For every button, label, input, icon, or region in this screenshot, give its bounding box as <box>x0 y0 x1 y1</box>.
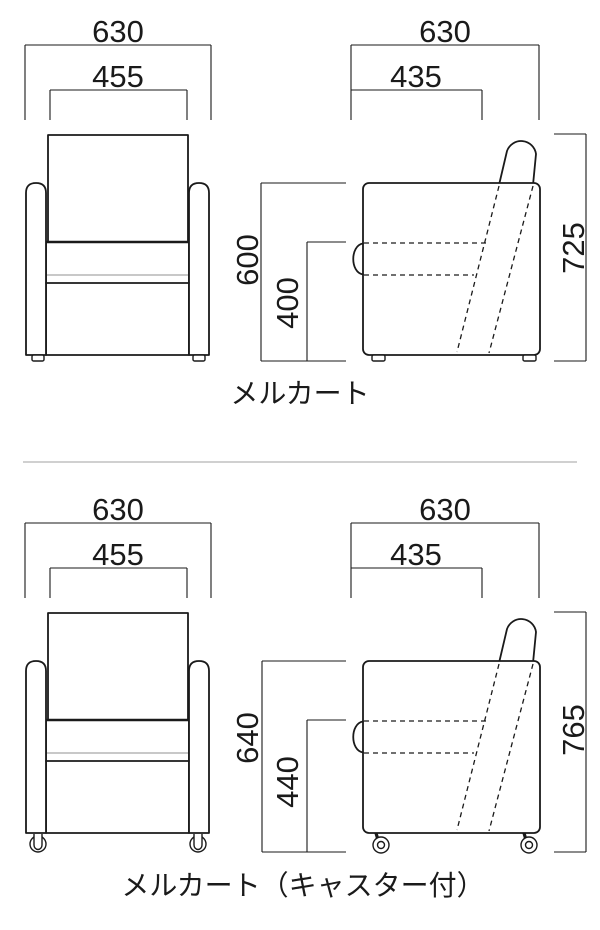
seat-height-value-caster: 440 <box>270 756 305 808</box>
side-seat-depth-value: 435 <box>390 59 442 94</box>
side-overall-depth-value: 630 <box>419 14 471 49</box>
seat-height-lines <box>307 242 346 361</box>
arm-height-lines <box>261 183 346 361</box>
front-caster-right-fork <box>194 834 202 850</box>
side-seat-depth-value-caster: 435 <box>390 537 442 572</box>
total-height-value: 725 <box>556 222 591 274</box>
arm-height-value-caster: 640 <box>230 712 265 764</box>
front-foot-left <box>32 355 44 361</box>
side-overall-depth-value-caster: 630 <box>419 492 471 527</box>
front-caster-right <box>190 834 206 852</box>
side-chair-standard <box>353 141 540 355</box>
front-chair-caster <box>26 613 209 833</box>
seat-height-lines-caster <box>307 720 346 852</box>
side-foot-front <box>372 355 385 361</box>
side-chair-caster <box>353 619 540 833</box>
side-caster-back-wheel <box>521 837 537 853</box>
front-foot-right <box>193 355 205 361</box>
product-dimension-sheet: 630 455 630 435 600 400 725 メルカート <box>0 0 600 930</box>
front-inner-width-value: 455 <box>92 59 144 94</box>
side-foot-back <box>523 355 536 361</box>
side-caster-front-wheel <box>373 837 389 853</box>
front-inner-width-value-caster: 455 <box>92 537 144 572</box>
arm-height-value: 600 <box>230 234 265 286</box>
front-caster-left-fork <box>34 834 42 850</box>
panel-standard: 630 455 630 435 600 400 725 メルカート <box>25 14 591 409</box>
front-overall-width-value: 630 <box>92 14 144 49</box>
side-caster-back <box>521 833 537 853</box>
product-name-standard: メルカート <box>230 378 369 409</box>
side-caster-front <box>373 833 389 853</box>
front-overall-width-value-caster: 630 <box>92 492 144 527</box>
product-name-caster: メルカート（キャスター付） <box>121 870 484 901</box>
front-caster-left <box>30 834 46 852</box>
dimension-drawing-svg: 630 455 630 435 600 400 725 メルカート <box>0 0 600 930</box>
total-height-value-caster: 765 <box>556 704 591 756</box>
panel-with-casters: 630 455 630 435 640 440 765 メルカート（キャスター付… <box>25 492 591 901</box>
seat-height-value: 400 <box>270 277 305 329</box>
front-chair-standard <box>26 135 209 355</box>
